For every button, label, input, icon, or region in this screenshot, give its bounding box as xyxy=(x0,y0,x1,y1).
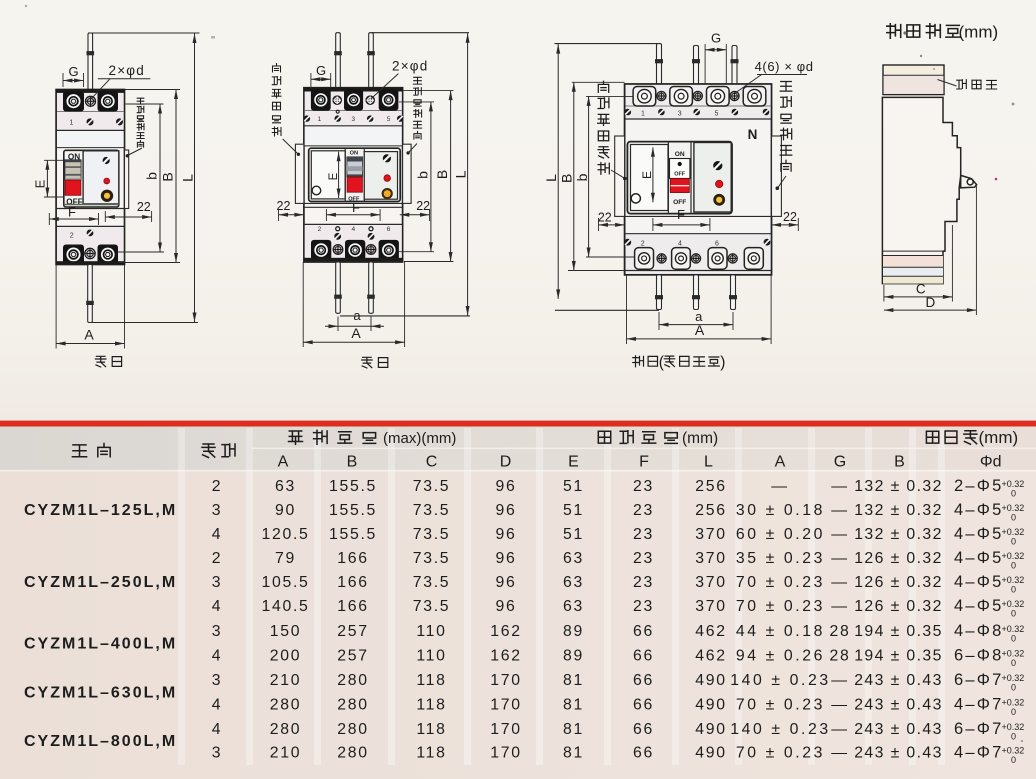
svg-text:ON: ON xyxy=(675,151,685,158)
svg-text:ON: ON xyxy=(350,150,358,156)
svg-text:22: 22 xyxy=(783,210,797,224)
svg-text:462: 462 xyxy=(695,623,726,640)
svg-text:3: 3 xyxy=(351,116,355,123)
svg-text:462: 462 xyxy=(695,648,726,665)
svg-text:A: A xyxy=(278,454,289,471)
svg-text:370: 370 xyxy=(695,574,726,591)
svg-text:(mm): (mm) xyxy=(682,430,718,447)
svg-text:A: A xyxy=(775,454,786,471)
svg-text:66: 66 xyxy=(633,745,654,762)
svg-text:3: 3 xyxy=(212,672,223,689)
svg-text:51: 51 xyxy=(563,478,584,495)
svg-text:3: 3 xyxy=(212,745,223,762)
svg-text:CYZM1L–800L,M: CYZM1L–800L,M xyxy=(24,733,177,750)
svg-text:4–Φ5: 4–Φ5 xyxy=(954,597,1004,615)
svg-text:140 ± 0.23: 140 ± 0.23 xyxy=(730,721,831,738)
svg-text:490: 490 xyxy=(695,721,726,738)
svg-text:4(6) × φd: 4(6) × φd xyxy=(755,59,814,74)
svg-text:90: 90 xyxy=(275,502,296,519)
svg-text:3: 3 xyxy=(212,623,223,640)
svg-text:1: 1 xyxy=(318,116,322,123)
svg-text:30 ± 0.18: 30 ± 0.18 xyxy=(736,502,825,519)
svg-text:—: — xyxy=(831,574,849,591)
svg-text:280: 280 xyxy=(337,697,368,714)
svg-text:4–Φ7: 4–Φ7 xyxy=(954,696,1004,714)
svg-text:210: 210 xyxy=(270,745,301,762)
svg-text:140 ± 0.23: 140 ± 0.23 xyxy=(730,672,831,689)
svg-text:b: b xyxy=(144,172,160,180)
svg-text:B: B xyxy=(894,454,905,471)
svg-text:—: — xyxy=(831,745,849,762)
svg-text:2–Φ5: 2–Φ5 xyxy=(954,477,1004,495)
svg-text:243 ± 0.43: 243 ± 0.43 xyxy=(854,697,943,714)
svg-text:A: A xyxy=(695,322,705,338)
svg-text:(mm): (mm) xyxy=(959,23,999,42)
svg-text:194 ± 0.35: 194 ± 0.35 xyxy=(854,623,943,640)
svg-text:140.5: 140.5 xyxy=(261,598,309,615)
svg-text:C: C xyxy=(916,282,926,297)
svg-text:6–Φ7: 6–Φ7 xyxy=(954,671,1004,689)
svg-text:370: 370 xyxy=(695,598,726,615)
svg-text:132 ± 0.32: 132 ± 0.32 xyxy=(854,526,943,543)
svg-text:4: 4 xyxy=(212,648,223,665)
svg-text:28: 28 xyxy=(830,648,851,665)
svg-text:G: G xyxy=(316,63,326,78)
svg-text:OFF: OFF xyxy=(673,199,686,206)
svg-text:79: 79 xyxy=(275,550,296,567)
svg-text:4–Φ7: 4–Φ7 xyxy=(954,744,1004,762)
svg-text:132 ± 0.32: 132 ± 0.32 xyxy=(854,478,943,495)
svg-text:132 ± 0.32: 132 ± 0.32 xyxy=(854,502,943,519)
svg-text:257: 257 xyxy=(337,648,368,665)
svg-text:E: E xyxy=(328,172,340,180)
svg-text:44 ± 0.18: 44 ± 0.18 xyxy=(736,623,825,640)
svg-text:(: ( xyxy=(659,354,665,371)
svg-text:—: — xyxy=(831,721,849,738)
svg-text:126 ± 0.32: 126 ± 0.32 xyxy=(854,598,943,615)
svg-text:126 ± 0.32: 126 ± 0.32 xyxy=(854,550,943,567)
svg-text:256: 256 xyxy=(695,478,726,495)
svg-text:4–Φ5: 4–Φ5 xyxy=(954,501,1004,519)
svg-text:22: 22 xyxy=(137,200,151,214)
svg-text:0: 0 xyxy=(1011,682,1016,692)
svg-text:3: 3 xyxy=(212,574,223,591)
svg-text:2: 2 xyxy=(70,233,74,240)
svg-text:0: 0 xyxy=(1011,658,1016,668)
svg-text:243 ± 0.43: 243 ± 0.43 xyxy=(854,672,943,689)
svg-text:280: 280 xyxy=(337,745,368,762)
svg-text:370: 370 xyxy=(695,526,726,543)
svg-text:28: 28 xyxy=(830,623,851,640)
svg-text:G: G xyxy=(68,64,78,79)
svg-text:0: 0 xyxy=(1011,512,1016,522)
svg-text:—: — xyxy=(831,697,849,714)
svg-text:2×φd: 2×φd xyxy=(109,63,145,78)
svg-text:81: 81 xyxy=(563,721,584,738)
svg-text:23: 23 xyxy=(633,478,654,495)
svg-text:B: B xyxy=(434,170,450,179)
svg-text:81: 81 xyxy=(563,697,584,714)
svg-text:22: 22 xyxy=(598,211,612,225)
svg-text:256: 256 xyxy=(695,502,726,519)
svg-text:L: L xyxy=(179,174,195,182)
svg-text:+0.32: +0.32 xyxy=(1002,697,1025,707)
svg-text:0: 0 xyxy=(1011,584,1016,594)
svg-text:96: 96 xyxy=(496,574,517,591)
svg-text:243 ± 0.43: 243 ± 0.43 xyxy=(854,721,943,738)
svg-text:280: 280 xyxy=(270,721,301,738)
svg-text:F: F xyxy=(68,205,76,220)
svg-text:81: 81 xyxy=(563,745,584,762)
svg-text:G: G xyxy=(834,454,846,471)
svg-text:4: 4 xyxy=(351,226,355,233)
svg-text:96: 96 xyxy=(496,478,517,495)
svg-text:3: 3 xyxy=(212,502,223,519)
svg-text:5: 5 xyxy=(387,116,391,123)
svg-text:4: 4 xyxy=(678,241,682,248)
svg-text:96: 96 xyxy=(496,502,517,519)
svg-text:51: 51 xyxy=(563,526,584,543)
svg-text:E: E xyxy=(568,454,579,471)
svg-text:280: 280 xyxy=(270,697,301,714)
svg-text:1: 1 xyxy=(70,120,74,127)
svg-text:CYZM1L–400L,M: CYZM1L–400L,M xyxy=(24,635,177,652)
svg-text:22: 22 xyxy=(277,199,291,213)
svg-text:166: 166 xyxy=(337,574,368,591)
svg-text:73.5: 73.5 xyxy=(413,478,451,495)
svg-text:+0.32: +0.32 xyxy=(1002,722,1025,732)
svg-text:155.5: 155.5 xyxy=(329,526,377,543)
svg-text:490: 490 xyxy=(695,672,726,689)
svg-text:+0.32: +0.32 xyxy=(1002,599,1025,609)
svg-text:23: 23 xyxy=(633,502,654,519)
svg-text:490: 490 xyxy=(695,745,726,762)
svg-text:—: — xyxy=(771,478,789,495)
svg-text:194 ± 0.35: 194 ± 0.35 xyxy=(854,648,943,665)
svg-text:66: 66 xyxy=(633,697,654,714)
svg-text:4–Φ5: 4–Φ5 xyxy=(954,549,1004,567)
svg-text:243 ± 0.43: 243 ± 0.43 xyxy=(854,745,943,762)
svg-text:70 ± 0.23: 70 ± 0.23 xyxy=(736,598,825,615)
svg-text:—: — xyxy=(831,478,849,495)
svg-text:63: 63 xyxy=(563,574,584,591)
svg-text:CYZM1L–630L,M: CYZM1L–630L,M xyxy=(24,684,177,701)
svg-text:166: 166 xyxy=(337,550,368,567)
svg-text:23: 23 xyxy=(633,598,654,615)
svg-text:(max)(mm): (max)(mm) xyxy=(383,430,456,447)
svg-text:2: 2 xyxy=(641,241,645,248)
svg-text:—: — xyxy=(831,550,849,567)
svg-text:F: F xyxy=(677,207,685,222)
svg-text:70 ± 0.23: 70 ± 0.23 xyxy=(736,745,825,762)
svg-text:5: 5 xyxy=(714,111,718,118)
svg-text:F: F xyxy=(639,454,649,471)
svg-text:D: D xyxy=(926,295,936,310)
svg-text:490: 490 xyxy=(695,697,726,714)
svg-text:6: 6 xyxy=(715,241,719,248)
svg-text:73.5: 73.5 xyxy=(413,502,451,519)
svg-text:70 ± 0.23: 70 ± 0.23 xyxy=(736,574,825,591)
svg-text:4: 4 xyxy=(212,598,223,615)
svg-text:73.5: 73.5 xyxy=(413,526,451,543)
svg-text:L: L xyxy=(543,174,559,182)
svg-text:63: 63 xyxy=(563,598,584,615)
svg-text:200: 200 xyxy=(270,648,301,665)
svg-text:0: 0 xyxy=(1011,755,1016,765)
svg-text:23: 23 xyxy=(633,550,654,567)
svg-text:E: E xyxy=(33,179,48,188)
svg-text:126 ± 0.32: 126 ± 0.32 xyxy=(854,574,943,591)
svg-text:2: 2 xyxy=(212,550,223,567)
svg-text:—: — xyxy=(831,598,849,615)
svg-text:22: 22 xyxy=(416,199,430,213)
svg-text:4: 4 xyxy=(212,697,223,714)
svg-text:118: 118 xyxy=(416,721,446,738)
svg-text:0: 0 xyxy=(1011,560,1016,570)
svg-text:+0.32: +0.32 xyxy=(1002,624,1025,634)
svg-text:+0.32: +0.32 xyxy=(1002,503,1025,513)
svg-text:66: 66 xyxy=(633,648,654,665)
svg-text:OFF: OFF xyxy=(674,171,685,177)
svg-text:23: 23 xyxy=(633,526,654,543)
svg-text:L: L xyxy=(452,170,468,178)
svg-text:3: 3 xyxy=(678,111,682,118)
svg-text:B: B xyxy=(559,174,575,183)
svg-text:66: 66 xyxy=(633,672,654,689)
svg-text:4: 4 xyxy=(212,526,223,543)
svg-text:+0.32: +0.32 xyxy=(1002,745,1025,755)
svg-text:118: 118 xyxy=(416,745,446,762)
svg-text:1: 1 xyxy=(641,111,645,118)
svg-text:Φd: Φd xyxy=(980,454,1002,471)
svg-text:b: b xyxy=(574,173,590,181)
svg-text:35 ± 0.23: 35 ± 0.23 xyxy=(736,550,825,567)
svg-text:0: 0 xyxy=(1011,608,1016,618)
svg-text:170: 170 xyxy=(490,721,521,738)
svg-text:0: 0 xyxy=(1011,707,1016,717)
svg-text:6–Φ7: 6–Φ7 xyxy=(954,720,1004,738)
svg-text:170: 170 xyxy=(490,672,521,689)
svg-text:4–Φ5: 4–Φ5 xyxy=(954,525,1004,543)
svg-text:66: 66 xyxy=(633,721,654,738)
svg-text:110: 110 xyxy=(416,648,446,665)
svg-text:0: 0 xyxy=(1011,731,1016,741)
svg-text:370: 370 xyxy=(695,550,726,567)
svg-text:2×φd: 2×φd xyxy=(392,59,428,74)
svg-text:b: b xyxy=(414,171,430,179)
svg-text:155.5: 155.5 xyxy=(329,478,377,495)
svg-text:4–Φ5: 4–Φ5 xyxy=(954,573,1004,591)
svg-text:60 ± 0.20: 60 ± 0.20 xyxy=(736,526,825,543)
svg-text:162: 162 xyxy=(490,623,521,640)
svg-text:66: 66 xyxy=(633,623,654,640)
svg-text:+0.32: +0.32 xyxy=(1002,648,1025,658)
svg-text:4: 4 xyxy=(212,721,223,738)
svg-text:L: L xyxy=(704,454,713,471)
svg-text:73.5: 73.5 xyxy=(413,550,451,567)
svg-text:—: — xyxy=(831,502,849,519)
svg-text:280: 280 xyxy=(337,672,368,689)
svg-text:+0.32: +0.32 xyxy=(1002,575,1025,585)
svg-text:—: — xyxy=(831,526,849,543)
svg-text:89: 89 xyxy=(563,623,584,640)
svg-text:6–Φ8: 6–Φ8 xyxy=(954,647,1004,665)
svg-text:170: 170 xyxy=(490,697,521,714)
svg-text:63: 63 xyxy=(275,478,296,495)
svg-text:2: 2 xyxy=(212,478,223,495)
svg-text:257: 257 xyxy=(337,623,368,640)
svg-text:+0.32: +0.32 xyxy=(1002,479,1025,489)
svg-text:118: 118 xyxy=(416,672,446,689)
svg-text:a: a xyxy=(353,308,361,323)
svg-text:6: 6 xyxy=(387,226,391,233)
svg-text:73.5: 73.5 xyxy=(413,598,451,615)
svg-text:170: 170 xyxy=(490,745,521,762)
svg-text:51: 51 xyxy=(563,502,584,519)
svg-text:70 ± 0.23: 70 ± 0.23 xyxy=(736,697,825,714)
svg-text:0: 0 xyxy=(1011,488,1016,498)
svg-text:23: 23 xyxy=(633,574,654,591)
svg-text:94 ± 0.26: 94 ± 0.26 xyxy=(736,648,825,665)
svg-text:A: A xyxy=(84,327,94,343)
svg-text:B: B xyxy=(160,172,176,181)
svg-text:CYZM1L–250L,M: CYZM1L–250L,M xyxy=(24,574,177,591)
svg-text:166: 166 xyxy=(337,598,368,615)
svg-text:F: F xyxy=(352,200,360,215)
svg-text:2: 2 xyxy=(318,226,322,233)
svg-text:—: — xyxy=(831,672,849,689)
svg-text:280: 280 xyxy=(337,721,368,738)
svg-text:0: 0 xyxy=(1011,633,1016,643)
svg-text:D: D xyxy=(500,454,512,471)
svg-text:150: 150 xyxy=(270,623,301,640)
svg-text:(mm): (mm) xyxy=(979,428,1019,447)
svg-text:4–Φ8: 4–Φ8 xyxy=(954,622,1004,640)
svg-text:B: B xyxy=(347,454,358,471)
svg-text:105.5: 105.5 xyxy=(261,574,309,591)
svg-text:89: 89 xyxy=(563,648,584,665)
svg-text:C: C xyxy=(426,454,438,471)
svg-text:+0.32: +0.32 xyxy=(1002,551,1025,561)
svg-text:73.5: 73.5 xyxy=(413,574,451,591)
svg-text:96: 96 xyxy=(496,526,517,543)
svg-text:E: E xyxy=(640,171,654,179)
svg-text:96: 96 xyxy=(496,598,517,615)
svg-text:CYZM1L–125L,M: CYZM1L–125L,M xyxy=(24,502,177,519)
svg-text:118: 118 xyxy=(416,697,446,714)
svg-text:): ) xyxy=(720,354,725,371)
svg-text:A: A xyxy=(351,325,361,341)
svg-text:110: 110 xyxy=(416,623,446,640)
svg-text:+0.32: +0.32 xyxy=(1002,527,1025,537)
svg-text:63: 63 xyxy=(563,550,584,567)
svg-text:N: N xyxy=(748,127,758,142)
svg-text:+0.32: +0.32 xyxy=(1002,673,1025,683)
svg-text:G: G xyxy=(711,31,721,46)
svg-text:162: 162 xyxy=(490,648,521,665)
svg-text:120.5: 120.5 xyxy=(261,526,309,543)
svg-text:96: 96 xyxy=(496,550,517,567)
svg-text:81: 81 xyxy=(563,672,584,689)
svg-text:155.5: 155.5 xyxy=(329,502,377,519)
svg-text:210: 210 xyxy=(270,672,301,689)
svg-text:0: 0 xyxy=(1011,536,1016,546)
